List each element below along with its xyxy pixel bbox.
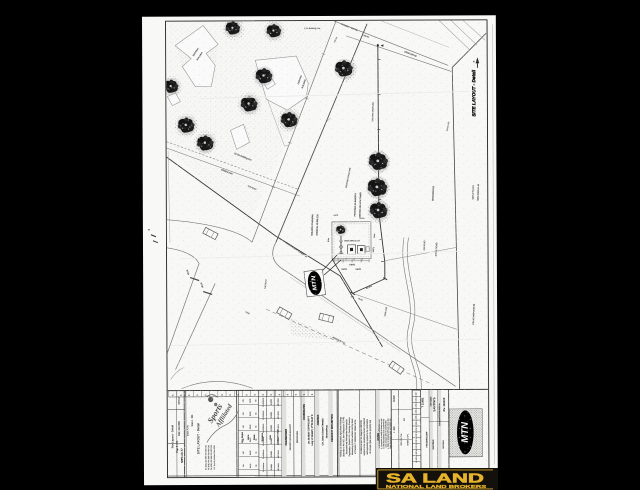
svg-text:NATIONAL LAND BROKERS: NATIONAL LAND BROKERS bbox=[386, 484, 487, 489]
